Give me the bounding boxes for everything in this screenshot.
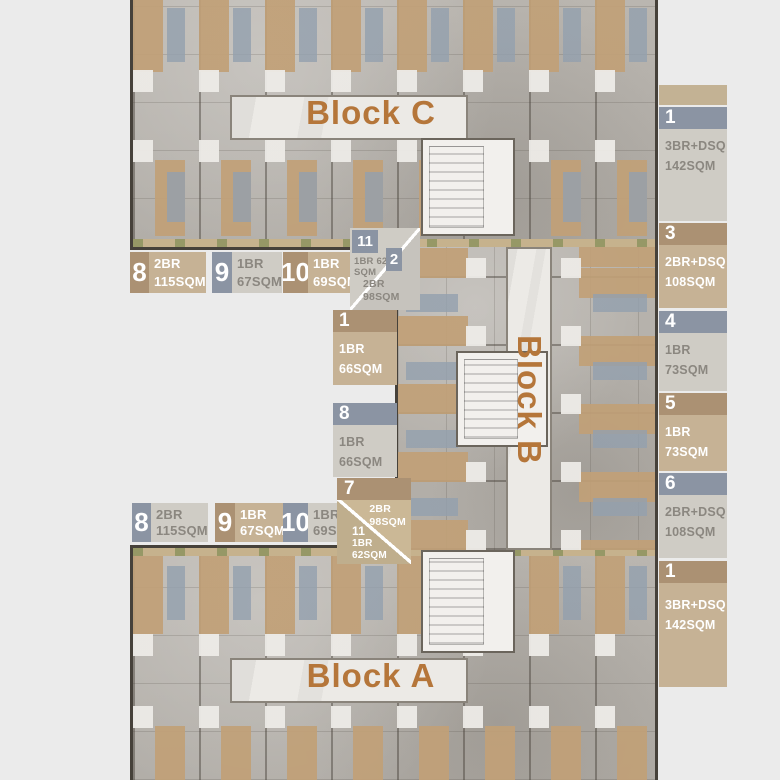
block-a-lower-bedroom-strip	[133, 726, 655, 780]
unit-number: 6	[659, 473, 727, 495]
unit-label-c8: 8 2BR 115SQM	[130, 252, 198, 293]
unit-number: 4	[659, 311, 727, 333]
unit-area: 115SQM	[154, 274, 206, 289]
unit-type: 3BR+DSQ	[665, 595, 727, 615]
right-column-deco-strip	[659, 85, 727, 105]
unit-number: 1	[659, 561, 727, 583]
unit-type: 2BR+DSQ	[665, 252, 727, 272]
unit-number-text: 7	[344, 478, 355, 500]
block-b-right-rug-strip	[593, 247, 647, 550]
block-a-elevator-core	[421, 550, 515, 653]
unit-number: 9	[212, 252, 232, 293]
block-c-upper-bath-strip	[133, 70, 655, 92]
unit-info: 2BR 115SQM	[151, 503, 208, 542]
unit-type: 1BR	[352, 538, 387, 550]
unit-number: 8	[132, 503, 151, 542]
unit-area: 108SQM	[665, 272, 727, 292]
unit-number: 10	[283, 252, 308, 293]
unit-info: 1BR 67SQM	[232, 252, 282, 293]
block-c-lower-bath-strip	[133, 140, 655, 162]
unit-info-lower: 11 1BR 62SQM	[352, 524, 387, 562]
block-a-stairs	[429, 558, 484, 645]
unit-label-r5: 5 1BR 73SQM	[659, 393, 727, 471]
block-a-floorplan: Block A	[130, 545, 658, 780]
unit-info: 1BR 73SQM	[659, 415, 727, 471]
unit-info: 2BR 98SQM	[363, 278, 400, 303]
unit-number: 2	[386, 248, 402, 271]
unit-number: 10	[283, 503, 308, 542]
unit-area: 115SQM	[156, 523, 208, 538]
block-c-title: Block C	[251, 94, 491, 132]
unit-area: 62SQM	[352, 550, 387, 562]
unit-label-corner-7-11: 7 2BR 98SQM 11 1BR 62SQM	[337, 478, 411, 564]
unit-area: 142SQM	[665, 156, 727, 176]
block-a-upper-bath-strip	[133, 634, 655, 656]
unit-area: 66SQM	[339, 359, 397, 379]
unit-info: 2BR 98SQM 11 1BR 62SQM	[337, 500, 411, 564]
unit-info: 1BR 62 SQM	[354, 256, 387, 279]
unit-type: 1BR	[240, 507, 285, 522]
block-a-lower-bath-strip	[133, 706, 655, 728]
unit-label-r1-bottom: 1 3BR+DSQ 142SQM	[659, 561, 727, 687]
unit-number: 8	[130, 252, 149, 293]
unit-info: 3BR+DSQ 142SQM	[659, 129, 727, 221]
unit-label-c9: 9 1BR 67SQM	[212, 252, 278, 293]
unit-info: 1BR 73SQM	[659, 333, 727, 391]
unit-area: 73SQM	[665, 442, 727, 462]
unit-label-r1-top: 1 3BR+DSQ 142SQM	[659, 107, 727, 221]
block-b-title: Block B	[506, 302, 552, 497]
unit-area: 98SQM	[363, 291, 400, 304]
block-c-upper-rug-strip	[133, 8, 655, 62]
unit-number: 7	[337, 478, 411, 500]
unit-area: 66SQM	[339, 452, 397, 472]
unit-type: 2BR	[363, 278, 400, 291]
unit-label-b1: 1 1BR 66SQM	[333, 310, 397, 385]
unit-type: 2BR+DSQ	[665, 502, 727, 522]
unit-type: 1BR	[339, 339, 397, 359]
unit-area: 67SQM	[237, 274, 282, 289]
site-floor-plan: Block C Block A Block B 8 2BR 115SQM	[0, 0, 780, 780]
unit-type: 3BR+DSQ	[665, 136, 727, 156]
unit-area: 67SQM	[240, 523, 285, 538]
unit-type: 2BR	[369, 503, 406, 516]
unit-type: 1BR	[665, 340, 727, 360]
unit-label-corner-11-2: 11 1BR 62 SQM 2 2BR 98SQM	[350, 228, 420, 310]
unit-info: 1BR 66SQM	[333, 425, 397, 477]
unit-info: 1BR 66SQM	[333, 332, 397, 385]
unit-type: 1BR	[339, 432, 397, 452]
unit-info: 2BR 115SQM	[149, 252, 206, 293]
unit-number: 1	[333, 310, 397, 332]
block-a-upper-rug-strip	[133, 566, 655, 620]
block-b-floorplan: Block B	[395, 247, 658, 550]
unit-area: 142SQM	[665, 615, 727, 635]
unit-number: 8	[333, 403, 397, 425]
unit-number: 3	[659, 223, 727, 245]
unit-type: 1BR	[665, 422, 727, 442]
unit-label-r6: 6 2BR+DSQ 108SQM	[659, 473, 727, 558]
block-c-lower-rug-strip	[133, 172, 655, 222]
unit-area: 108SQM	[665, 522, 727, 542]
unit-label-r4: 4 1BR 73SQM	[659, 311, 727, 391]
block-b-right-bath-strip	[561, 247, 581, 550]
unit-number: 1	[659, 107, 727, 129]
unit-number: 11	[352, 230, 378, 253]
unit-info: 2BR+DSQ 108SQM	[659, 495, 727, 558]
unit-number: 11	[352, 524, 387, 538]
unit-info: 2BR+DSQ 108SQM	[659, 245, 727, 308]
block-c-stairs	[429, 146, 484, 228]
block-c-floorplan: Block C	[130, 0, 658, 250]
unit-type: 2BR	[154, 256, 206, 271]
unit-label-c10: 10 1BR 69SQM	[283, 252, 352, 293]
unit-label-r3: 3 2BR+DSQ 108SQM	[659, 223, 727, 308]
unit-type: 1BR 62	[354, 256, 387, 267]
unit-type: 2BR	[156, 507, 208, 522]
unit-label-b8: 8 1BR 66SQM	[333, 403, 397, 477]
unit-type: 1BR	[237, 256, 282, 271]
unit-number: 9	[215, 503, 235, 542]
unit-label-a9: 9 1BR 67SQM	[215, 503, 280, 542]
unit-info: 1BR 67SQM	[235, 503, 285, 542]
unit-label-a8: 8 2BR 115SQM	[132, 503, 202, 542]
unit-area: 73SQM	[665, 360, 727, 380]
unit-number: 5	[659, 393, 727, 415]
block-a-title: Block A	[251, 657, 491, 695]
unit-info: 3BR+DSQ 142SQM	[659, 583, 727, 687]
block-c-elevator-core	[421, 138, 515, 236]
